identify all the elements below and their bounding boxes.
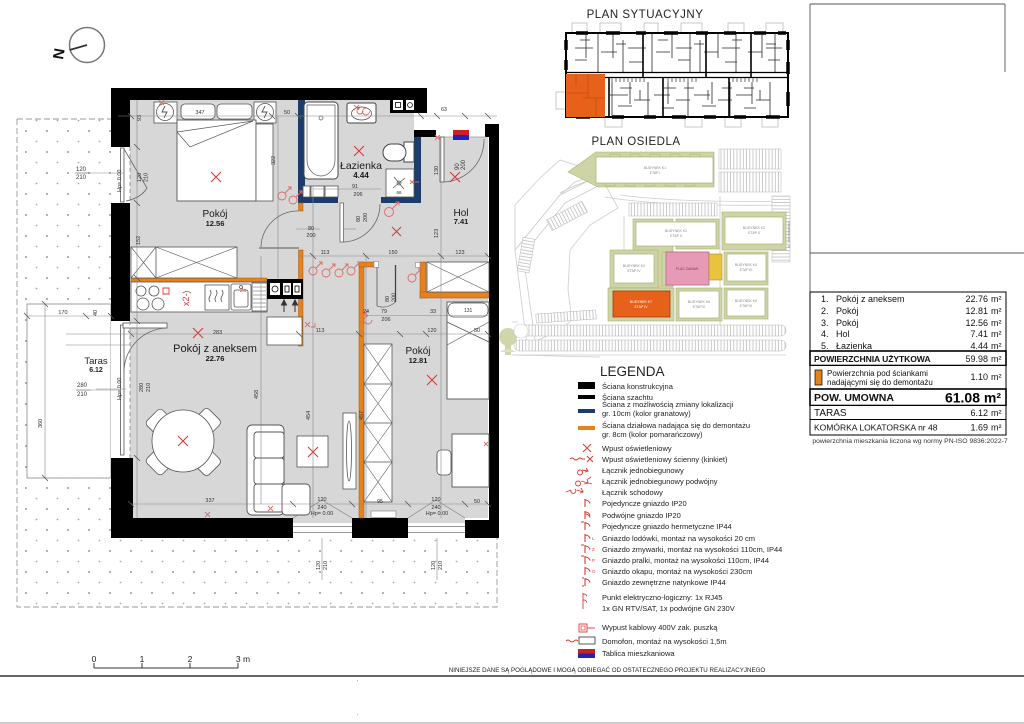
svg-text:Ściana z możliwością zmiany lo: Ściana z możliwością zmiany lokalizacji bbox=[602, 400, 734, 409]
svg-text:95: 95 bbox=[377, 499, 383, 505]
svg-text:210: 210 bbox=[323, 561, 329, 570]
svg-text:59.98: 59.98 bbox=[965, 354, 988, 364]
svg-text:91: 91 bbox=[352, 184, 358, 190]
svg-text:240: 240 bbox=[317, 505, 326, 511]
svg-text:206: 206 bbox=[353, 192, 362, 198]
svg-text:Pojedyncze gniazdo IP20: Pojedyncze gniazdo IP20 bbox=[602, 499, 687, 508]
svg-text:ETAP III: ETAP III bbox=[740, 304, 753, 308]
svg-text:120: 120 bbox=[137, 173, 143, 182]
svg-text:61.08 m²: 61.08 m² bbox=[945, 390, 1001, 406]
svg-text:ETAP IV: ETAP IV bbox=[627, 269, 641, 273]
svg-text:200: 200 bbox=[392, 293, 398, 302]
svg-text:Hp= 0.00: Hp= 0.00 bbox=[311, 511, 333, 517]
svg-text:BUDYNEK K7: BUDYNEK K7 bbox=[630, 300, 652, 304]
svg-text:22.76: 22.76 bbox=[965, 294, 988, 304]
svg-text:PLAN OSIEDLA: PLAN OSIEDLA bbox=[591, 136, 680, 148]
svg-text:33: 33 bbox=[430, 309, 436, 315]
svg-text:120: 120 bbox=[76, 167, 87, 173]
svg-text:12.56: 12.56 bbox=[965, 318, 988, 328]
svg-text:347: 347 bbox=[195, 110, 204, 116]
svg-text:Podwójne gniazdo IP20: Podwójne gniazdo IP20 bbox=[602, 511, 681, 520]
svg-text:5.: 5. bbox=[821, 341, 829, 351]
svg-text:Powierzchnia pod ściankami: Powierzchnia pod ściankami bbox=[827, 369, 928, 378]
svg-text:6.12: 6.12 bbox=[970, 408, 988, 418]
svg-text:3.: 3. bbox=[821, 318, 829, 328]
svg-text:ul. Wrocławska: ul. Wrocławska bbox=[786, 220, 791, 248]
svg-text:m²: m² bbox=[991, 423, 1002, 433]
svg-text:PLAN SYTUACYJNY: PLAN SYTUACYJNY bbox=[587, 9, 704, 21]
svg-text:BUDYNEK K3: BUDYNEK K3 bbox=[623, 264, 645, 268]
svg-text:50: 50 bbox=[474, 499, 480, 505]
svg-text:Gniazdo okapu, montaż na wysok: Gniazdo okapu, montaż na wysokości 230cm bbox=[602, 567, 753, 576]
svg-text:m²: m² bbox=[991, 329, 1002, 339]
svg-text:123: 123 bbox=[455, 250, 464, 256]
svg-text:79: 79 bbox=[381, 309, 387, 315]
svg-text:Domofon, montaż na wysokości 1: Domofon, montaż na wysokości 1,5m bbox=[602, 637, 727, 646]
svg-text:P: P bbox=[592, 558, 595, 563]
svg-text:152: 152 bbox=[136, 236, 142, 245]
svg-text:Ściana konstrukcyjna: Ściana konstrukcyjna bbox=[602, 382, 674, 391]
svg-text:113: 113 bbox=[316, 328, 325, 334]
svg-text:7.41: 7.41 bbox=[970, 329, 988, 339]
svg-text:Łącznik jednobiegunowy: Łącznik jednobiegunowy bbox=[602, 466, 684, 475]
svg-text:BUDYNEK K2: BUDYNEK K2 bbox=[743, 226, 765, 230]
svg-text:12.81: 12.81 bbox=[409, 356, 428, 365]
svg-text:m²: m² bbox=[991, 306, 1002, 316]
svg-text:337: 337 bbox=[205, 498, 214, 504]
svg-text:80: 80 bbox=[356, 216, 362, 222]
svg-text:2: 2 bbox=[188, 654, 193, 664]
svg-text:Wypust kablowy 400V zak. puszk: Wypust kablowy 400V zak. puszką bbox=[602, 623, 718, 632]
svg-text:93: 93 bbox=[137, 115, 143, 121]
svg-text:ETAP II: ETAP II bbox=[670, 234, 682, 238]
svg-text:m²: m² bbox=[991, 294, 1002, 304]
svg-text:200: 200 bbox=[461, 159, 467, 170]
svg-text:322: 322 bbox=[271, 156, 277, 165]
svg-text:gr. 8cm (kolor pomarańczowy): gr. 8cm (kolor pomarańczowy) bbox=[602, 430, 703, 439]
svg-text:Zo: Zo bbox=[240, 288, 246, 294]
svg-text:210: 210 bbox=[144, 173, 150, 182]
svg-text:1x GN RTV/SAT, 1x podwójne GN: 1x GN RTV/SAT, 1x podwójne GN 230V bbox=[602, 604, 735, 613]
svg-text:63: 63 bbox=[441, 107, 447, 113]
svg-text:1: 1 bbox=[140, 654, 145, 664]
svg-text:TARAS: TARAS bbox=[814, 408, 847, 419]
svg-text:280: 280 bbox=[77, 383, 88, 389]
svg-text:40: 40 bbox=[93, 310, 99, 316]
svg-text:2.: 2. bbox=[821, 306, 829, 316]
svg-text:Z: Z bbox=[592, 547, 595, 552]
svg-text:nadającymi się do demontażu: nadającymi się do demontażu bbox=[827, 378, 933, 387]
svg-text:200: 200 bbox=[363, 213, 369, 222]
svg-text:POWIERZCHNIA UŻYTKOWA: POWIERZCHNIA UŻYTKOWA bbox=[814, 354, 930, 364]
svg-text:210: 210 bbox=[77, 392, 88, 398]
svg-text:210: 210 bbox=[146, 383, 152, 392]
svg-text:22.76: 22.76 bbox=[206, 354, 225, 363]
svg-text:': ' bbox=[357, 680, 358, 686]
svg-text:ETAP IV: ETAP IV bbox=[634, 305, 648, 309]
svg-text:Pojedyncze gniazdo hermetyczne: Pojedyncze gniazdo hermetyczne IP44 bbox=[602, 522, 732, 531]
svg-text:Pokój: Pokój bbox=[836, 306, 859, 316]
svg-text:Łącznik jednobiegunowy podwójn: Łącznik jednobiegunowy podwójny bbox=[602, 477, 718, 486]
svg-text:68: 68 bbox=[396, 190, 402, 195]
svg-text:Hp= 0.00: Hp= 0.00 bbox=[426, 511, 448, 517]
svg-text:Hol: Hol bbox=[836, 329, 850, 339]
svg-text:283: 283 bbox=[213, 330, 222, 336]
svg-text:m²: m² bbox=[991, 318, 1002, 328]
svg-text:80: 80 bbox=[385, 296, 391, 302]
svg-text:Gniazdo pralki, montaż na wyso: Gniazdo pralki, montaż na wysokości 110c… bbox=[602, 556, 769, 565]
svg-text:0: 0 bbox=[92, 654, 97, 664]
svg-text:113: 113 bbox=[321, 250, 330, 256]
svg-text:ETAP III: ETAP III bbox=[740, 268, 753, 272]
svg-text:m²: m² bbox=[991, 354, 1002, 364]
svg-text:Gniazdo zmywarki, montaż na wy: Gniazdo zmywarki, montaż na wysokości 11… bbox=[602, 545, 782, 554]
svg-text:454: 454 bbox=[306, 411, 312, 420]
svg-text:130: 130 bbox=[434, 166, 440, 175]
svg-text:150: 150 bbox=[388, 250, 397, 256]
svg-text:4.44: 4.44 bbox=[970, 341, 988, 351]
svg-text:4.44: 4.44 bbox=[353, 171, 369, 180]
svg-text:Gniazdo zewnętrzne natynkowe I: Gniazdo zewnętrzne natynkowe IP44 bbox=[602, 578, 726, 587]
svg-text:200: 200 bbox=[306, 233, 315, 239]
svg-text:POW. UMOWNA: POW. UMOWNA bbox=[814, 392, 894, 404]
svg-text:6.12: 6.12 bbox=[89, 367, 103, 374]
svg-text:210: 210 bbox=[76, 175, 87, 181]
svg-text:80: 80 bbox=[308, 226, 314, 232]
svg-text:Tablica mieszkaniowa: Tablica mieszkaniowa bbox=[602, 649, 675, 658]
svg-text:NINIEJSZE DANE SĄ POGLĄDOWE I: NINIEJSZE DANE SĄ POGLĄDOWE I MOGĄ ODBIE… bbox=[449, 667, 766, 674]
svg-text:ETAP II: ETAP II bbox=[748, 231, 760, 235]
svg-text:50: 50 bbox=[284, 110, 290, 116]
svg-text:12.56: 12.56 bbox=[206, 219, 225, 228]
svg-text:Wpust oświetleniowy ścienny (k: Wpust oświetleniowy ścienny (kinkiet) bbox=[602, 455, 728, 464]
svg-text:120: 120 bbox=[427, 328, 436, 334]
svg-text:powierzchnia mieszkania liczon: powierzchnia mieszkania liczona wg normy… bbox=[812, 438, 1008, 445]
svg-text:50: 50 bbox=[474, 328, 480, 334]
svg-text:210: 210 bbox=[438, 561, 444, 570]
svg-text:LEGENDA: LEGENDA bbox=[600, 364, 665, 379]
svg-text:BUDYNEK K1: BUDYNEK K1 bbox=[644, 166, 666, 170]
svg-text:12.81: 12.81 bbox=[965, 306, 988, 316]
svg-text:170: 170 bbox=[58, 310, 67, 316]
svg-text:4.: 4. bbox=[821, 329, 829, 339]
svg-text:120: 120 bbox=[316, 561, 322, 570]
svg-text:BUDYNEK K4: BUDYNEK K4 bbox=[735, 263, 757, 267]
svg-text:x2-): x2-) bbox=[181, 290, 191, 306]
svg-text:gr. 10cm (kolor granatowy): gr. 10cm (kolor granatowy) bbox=[602, 409, 691, 418]
svg-text:280: 280 bbox=[139, 383, 145, 392]
svg-text:PLAC ZABAW: PLAC ZABAW bbox=[676, 267, 699, 271]
svg-text:Taras: Taras bbox=[84, 356, 107, 367]
svg-text:ETAP I: ETAP I bbox=[650, 171, 661, 175]
svg-text:7.41: 7.41 bbox=[454, 217, 469, 226]
svg-text:Łącznik schodowy: Łącznik schodowy bbox=[602, 488, 663, 497]
svg-text:3 m: 3 m bbox=[236, 654, 250, 664]
svg-text:Ściana działowa nadająca się d: Ściana działowa nadająca się do demontaż… bbox=[602, 421, 750, 430]
svg-text:Pokój z aneksem: Pokój z aneksem bbox=[836, 294, 905, 304]
svg-text:123: 123 bbox=[434, 229, 440, 238]
svg-text:24: 24 bbox=[363, 309, 369, 315]
svg-text:BUDYNEK K8: BUDYNEK K8 bbox=[735, 299, 757, 303]
svg-text:458: 458 bbox=[254, 390, 260, 399]
svg-text:457: 457 bbox=[359, 411, 365, 420]
svg-text:131: 131 bbox=[464, 308, 473, 314]
svg-text:O: O bbox=[592, 569, 596, 574]
svg-text:m²: m² bbox=[991, 408, 1002, 418]
svg-text:120: 120 bbox=[431, 497, 440, 503]
svg-text:1.10: 1.10 bbox=[970, 372, 988, 382]
svg-text:BUDYNEK K6: BUDYNEK K6 bbox=[688, 300, 710, 304]
svg-text:': ' bbox=[357, 714, 358, 720]
svg-text:Gniazdo lodówki, montaż na wys: Gniazdo lodówki, montaż na wysokości 20 … bbox=[602, 534, 755, 543]
svg-text:Pokój: Pokój bbox=[836, 318, 859, 328]
svg-text:Wpust oświetleniowy: Wpust oświetleniowy bbox=[602, 444, 672, 453]
svg-text:240: 240 bbox=[431, 505, 440, 511]
svg-text:m²: m² bbox=[991, 372, 1002, 382]
svg-text:1.: 1. bbox=[821, 294, 829, 304]
svg-text:206: 206 bbox=[381, 317, 390, 323]
svg-text:Łazienka: Łazienka bbox=[836, 341, 872, 351]
svg-text:120: 120 bbox=[431, 561, 437, 570]
svg-text:1.69: 1.69 bbox=[970, 423, 988, 433]
svg-text:Punkt elektryczno-logiczny: 1x: Punkt elektryczno-logiczny: 1x RJ45 bbox=[602, 593, 722, 602]
svg-text:ETAP III: ETAP III bbox=[693, 305, 706, 309]
svg-text:BUDYNEK K2: BUDYNEK K2 bbox=[665, 229, 687, 233]
svg-text:360: 360 bbox=[38, 419, 44, 428]
svg-text:120: 120 bbox=[317, 497, 326, 503]
svg-text:KOMÓRKA LOKATORSKA nr 48: KOMÓRKA LOKATORSKA nr 48 bbox=[814, 423, 938, 433]
svg-text:m²: m² bbox=[991, 341, 1002, 351]
